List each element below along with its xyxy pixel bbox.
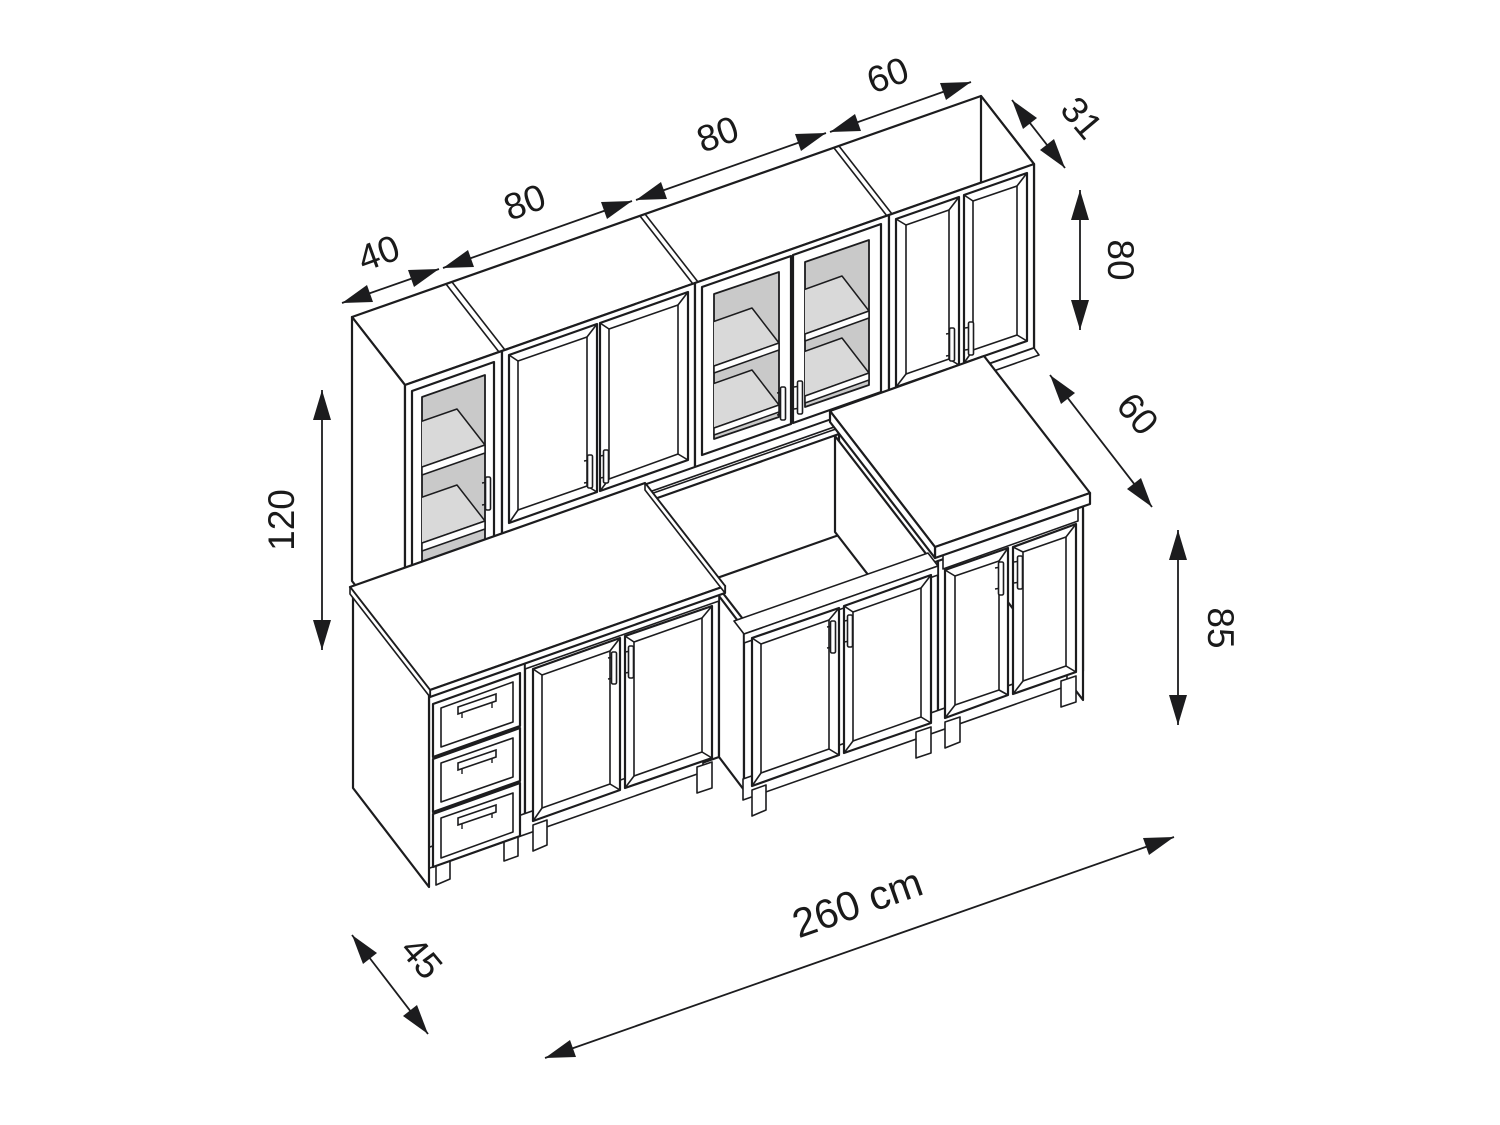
dim-label-45: 45: [393, 929, 451, 987]
dim-label-80-height: 80: [1100, 239, 1141, 280]
dim-45: 45: [352, 929, 451, 1034]
dim-260: 260 cm: [545, 837, 1174, 1058]
dim-label-31: 31: [1053, 89, 1111, 147]
dim-label-60-top: 60: [861, 49, 914, 102]
dim-label-80-b: 80: [691, 108, 744, 161]
dim-label-80-a: 80: [498, 176, 551, 229]
dim-label-40: 40: [352, 227, 405, 280]
dim-label-85: 85: [1200, 607, 1241, 648]
kitchen-dimension-drawing-page: 40 80 80 60 31: [0, 0, 1500, 1125]
dim-80-height: 80: [1071, 190, 1141, 330]
dim-85: 85: [1169, 530, 1241, 725]
dim-120: 120: [261, 390, 331, 650]
dim-label-260: 260 cm: [786, 859, 928, 947]
dim-label-60-depth: 60: [1109, 385, 1167, 443]
kitchen-isometric-drawing: 40 80 80 60 31: [0, 0, 1500, 1125]
base-drawer-unit: [433, 673, 520, 867]
dim-label-120: 120: [261, 489, 302, 551]
